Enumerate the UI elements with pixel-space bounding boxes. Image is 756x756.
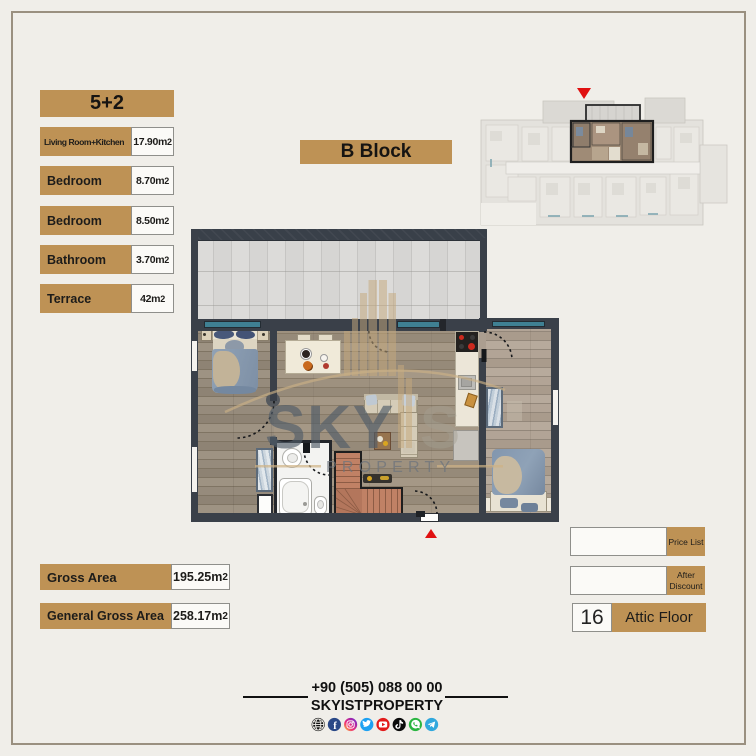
- svg-text:f: f: [333, 721, 337, 732]
